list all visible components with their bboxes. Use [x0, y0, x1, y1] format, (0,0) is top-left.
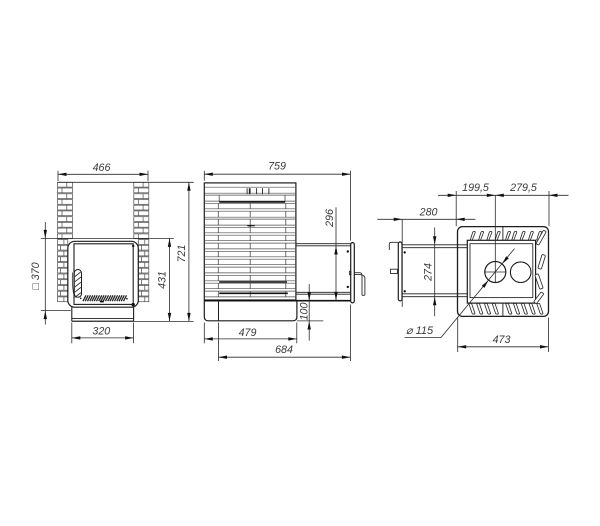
svg-text:431: 431 [156, 271, 168, 289]
svg-text:280: 280 [419, 206, 438, 218]
svg-text:100: 100 [298, 303, 310, 321]
svg-text:199,5: 199,5 [462, 182, 489, 194]
svg-text:759: 759 [268, 160, 286, 172]
svg-text:320: 320 [92, 325, 110, 337]
svg-text:473: 473 [493, 334, 511, 346]
svg-text:⌀ 115: ⌀ 115 [406, 325, 434, 337]
svg-text:721: 721 [176, 245, 188, 263]
svg-text:296: 296 [324, 209, 336, 228]
svg-text:274: 274 [423, 263, 435, 282]
svg-text:684: 684 [275, 344, 293, 356]
svg-text:479: 479 [239, 327, 257, 339]
svg-text:□ 370: □ 370 [30, 262, 42, 289]
svg-text:466: 466 [93, 162, 111, 174]
svg-text:279,5: 279,5 [509, 182, 537, 194]
